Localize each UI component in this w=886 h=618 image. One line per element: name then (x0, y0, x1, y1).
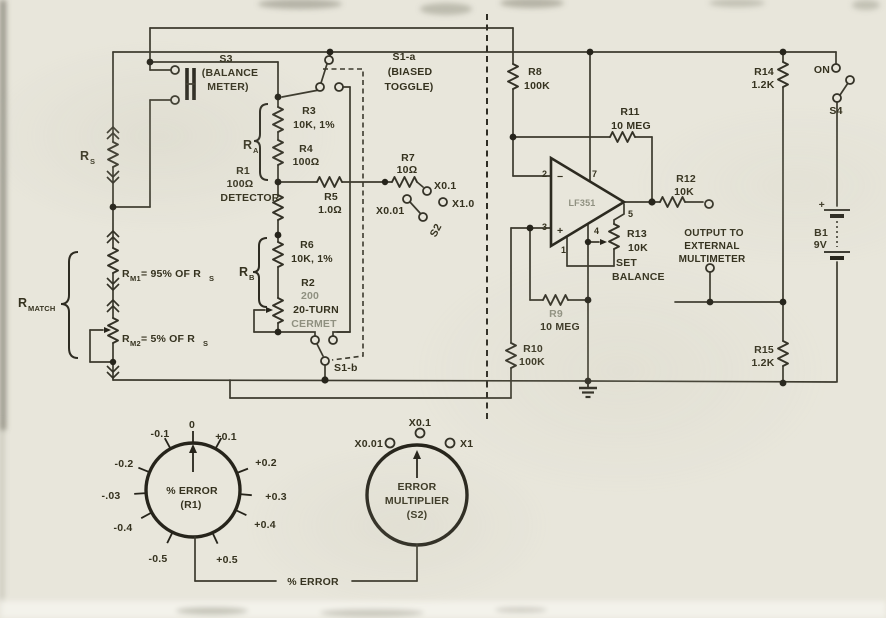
dial-contact-x001 (386, 439, 395, 448)
junction-dots (110, 49, 787, 387)
opamp-pin7: 7 (592, 169, 597, 179)
mult-x01-label: X0.1 (434, 180, 456, 192)
r5-value: 1.0Ω (318, 204, 342, 216)
r13-ref: R13 (627, 228, 647, 240)
error-scale-m01: -0.1 (151, 428, 170, 440)
r5-ref: R5 (324, 191, 338, 203)
r15-ref: R15 (754, 344, 774, 356)
mult-dial-title3: (S2) (407, 509, 428, 521)
ra-sub: A (253, 146, 259, 155)
r1-note: DETECTOR (220, 192, 279, 204)
r8-value: 100K (524, 80, 550, 92)
opamp-plus: + (557, 225, 563, 237)
s1a-contact-left (316, 83, 324, 91)
rm2-label: R (122, 333, 130, 345)
labels: S3 (BALANCE METER) R S R MATCH R M1 = 95… (18, 51, 843, 588)
s1b-ref: S1-b (334, 362, 358, 374)
error-scale-p03: +0.3 (265, 491, 287, 503)
r2-note1: 20-TURN (293, 304, 339, 316)
r10-value: 100K (519, 356, 545, 368)
error-scale-m03: -.03 (102, 490, 121, 502)
error-scale-0: 0 (189, 419, 195, 431)
r4-value: 100Ω (293, 156, 320, 168)
mult-x10-label: X1.0 (452, 198, 474, 210)
rs-label: R (80, 149, 89, 163)
s1a-contact-right (335, 83, 343, 91)
rmatch-brace (61, 252, 78, 358)
b1-value: 9V (814, 239, 827, 251)
resistor-rs (108, 142, 118, 167)
rm1-sub: M1 (130, 274, 141, 283)
rmatch-label: R (18, 296, 27, 310)
scan-artifacts (0, 0, 886, 618)
output-jack-hot (705, 200, 713, 208)
opamp-pin1: 1 (561, 245, 566, 255)
s2-ref: S2 (428, 222, 445, 239)
resistor-r11 (610, 132, 635, 142)
r9-ref: R9 (549, 308, 563, 320)
s4-arm-bottom (833, 94, 841, 102)
b1-plus: + (819, 199, 825, 211)
mult-x001-label: X0.01 (376, 205, 404, 217)
resistor-r9 (543, 295, 568, 305)
mult-dial-title1: ERROR (398, 481, 437, 493)
r1-ref: R1 (236, 165, 250, 177)
mult-pos-x1: X1 (460, 438, 473, 450)
resistor-r4 (273, 140, 283, 165)
rm1-label: R (122, 268, 130, 280)
resistor-r14 (778, 62, 788, 87)
resistor-rm1 (108, 248, 118, 273)
r7-ref: R7 (401, 152, 415, 164)
output-line3: MULTIMETER (679, 254, 746, 265)
s2-pole (419, 213, 427, 221)
ra-brace (254, 104, 268, 180)
rm1-eq: = 95% OF R (141, 268, 201, 280)
error-scale-m02: -0.2 (115, 458, 134, 470)
s3-line2: METER) (207, 81, 248, 93)
resistor-r10 (506, 343, 516, 368)
r7-value: 10Ω (397, 164, 418, 176)
r12-ref: R12 (676, 173, 696, 185)
error-dial-subtitle: (R1) (180, 499, 201, 511)
s1a-pole (325, 56, 333, 64)
s4-arm-top (846, 76, 854, 84)
s1a-line2: TOGGLE) (384, 81, 433, 93)
r3-ref: R3 (302, 105, 316, 117)
s4-contact (832, 64, 840, 72)
rm2-sub: M2 (130, 339, 141, 348)
s1b-contact-left (311, 336, 319, 344)
s3-ref: S3 (219, 53, 232, 65)
r13-note1: SET (616, 257, 637, 269)
circuit-schematic: S3 (BALANCE METER) R S R MATCH R M1 = 95… (0, 0, 886, 618)
rb-sub: B (249, 273, 255, 282)
b1-ref: B1 (814, 227, 828, 239)
r13-value: 10K (628, 242, 648, 254)
r9-value: 10 MEG (540, 321, 580, 333)
scanned-schematic-page: S3 (BALANCE METER) R S R MATCH R M1 = 95… (0, 0, 886, 618)
s3-line1: (BALANCE (202, 67, 258, 79)
r11-value: 10 MEG (611, 120, 651, 132)
r10-ref: R10 (523, 343, 543, 355)
dial-contact-x01 (416, 429, 425, 438)
opamp-pin5: 5 (628, 209, 633, 219)
resistor-r2 (273, 298, 283, 323)
r15-value: 1.2K (752, 357, 775, 369)
mult-dial-title2: MULTIPLIER (385, 495, 449, 507)
error-scale-m04: -0.4 (114, 522, 133, 534)
s1a-line1: (BIASED (388, 66, 433, 78)
error-scale-m05: -0.5 (149, 553, 168, 565)
s3-contact-bottom (171, 96, 179, 104)
error-scale-p01: +0.1 (215, 431, 237, 443)
s2-contact-x10 (439, 198, 447, 206)
r4-ref: R4 (299, 143, 313, 155)
rs-sub: S (90, 157, 95, 166)
error-scale-p04: +0.4 (254, 519, 276, 531)
opamp-pin4: 4 (594, 226, 599, 236)
opamp-pin3: 3 (542, 222, 547, 232)
s4-ref: S4 (829, 105, 842, 117)
r3-value: 10K, 1% (293, 119, 335, 131)
r14-ref: R14 (754, 66, 774, 78)
ra-label: R (243, 138, 252, 152)
r2-value: 200 (301, 290, 319, 302)
rm2-eq: = 5% OF R (141, 333, 195, 345)
r8-ref: R8 (528, 66, 542, 78)
braces (61, 104, 268, 358)
s1a-ref: S1-a (393, 51, 416, 63)
s3-pushbutton-icon (187, 68, 194, 100)
dial-footer-label: % ERROR (287, 576, 339, 588)
r6-ref: R6 (300, 239, 314, 251)
s2-contact-x001 (403, 195, 411, 203)
s2-contact-x01 (423, 187, 431, 195)
rm1-eq-sub: S (209, 274, 214, 283)
mult-pos-x001: X0.01 (355, 438, 383, 450)
output-jack-common (706, 264, 714, 272)
error-dial-title: % ERROR (166, 485, 218, 497)
opamp-minus: − (557, 171, 563, 183)
rb-label: R (239, 265, 248, 279)
resistor-r7 (392, 177, 417, 187)
ground-symbol (579, 381, 597, 397)
error-scale-p02: +0.2 (255, 457, 277, 469)
r11-ref: R11 (620, 106, 639, 118)
wiper-arrows (104, 239, 607, 333)
resistor-r12 (660, 197, 685, 207)
rmatch-sub: MATCH (28, 304, 56, 313)
output-line1: OUTPUT TO (684, 228, 743, 239)
opamp-part: LF351 (568, 198, 595, 208)
s1b-pole (321, 357, 329, 365)
r14-value: 1.2K (752, 79, 775, 91)
rm2-eq-sub: S (203, 339, 208, 348)
r6-value: 10K, 1% (291, 253, 333, 265)
dial-contact-x1 (446, 439, 455, 448)
resistor-r6 (273, 242, 283, 267)
opamp-pin2: 2 (542, 169, 547, 179)
output-line2: EXTERNAL (684, 241, 740, 252)
s1b-contact-right (329, 336, 337, 344)
resistor-r13 (609, 224, 619, 249)
resistor-r5 (317, 177, 342, 187)
resistors (108, 62, 788, 368)
s4-on-label: ON (814, 64, 830, 76)
r12-value: 10K (674, 186, 694, 198)
mult-pos-x01: X0.1 (409, 417, 431, 429)
s3-contact-top (171, 66, 179, 74)
resistor-r15 (778, 341, 788, 366)
rb-brace (253, 238, 267, 307)
resistor-r3 (273, 107, 283, 132)
error-scale-p05: +0.5 (216, 554, 238, 566)
r13-note2: BALANCE (612, 271, 665, 283)
r2-ref: R2 (301, 277, 315, 289)
r1-value: 100Ω (227, 178, 254, 190)
resistor-r8 (508, 64, 518, 89)
r2-note2: CERMET (291, 318, 337, 330)
